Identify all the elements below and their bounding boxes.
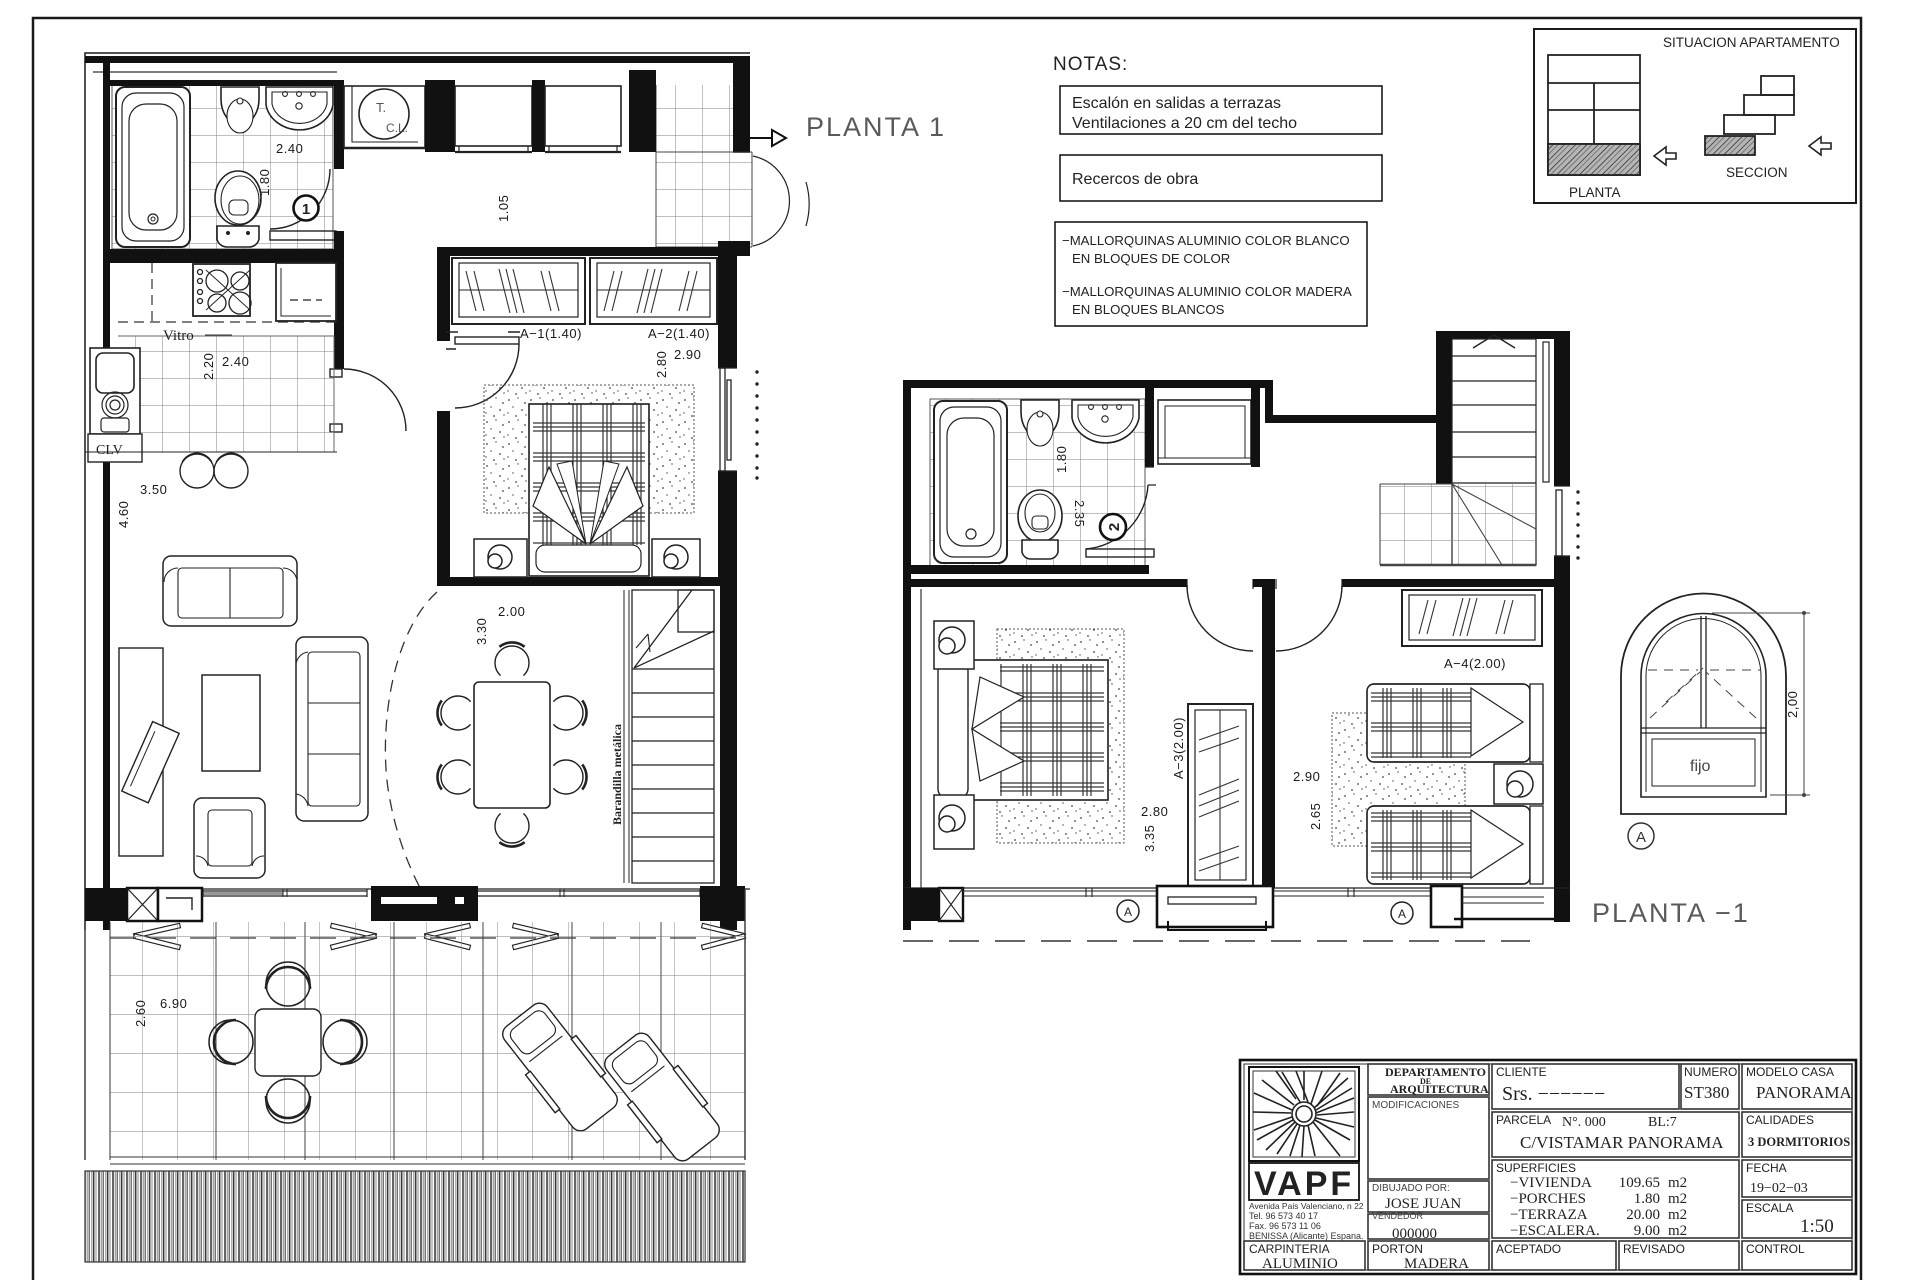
svg-text:ACEPTADO: ACEPTADO [1496,1242,1561,1256]
svg-text:3.30: 3.30 [474,618,489,645]
svg-text:2,00: 2,00 [1785,691,1800,718]
svg-text:BL:7: BL:7 [1648,1115,1677,1130]
svg-text:m2: m2 [1668,1191,1687,1207]
svg-text:N°. 000: N°. 000 [1562,1115,1606,1130]
svg-text:EN BLOQUES BLANCOS: EN BLOQUES BLANCOS [1072,302,1225,317]
svg-text:PLANTA: PLANTA [1569,185,1621,200]
svg-text:2.80: 2.80 [654,351,669,378]
svg-text:PANORAMA: PANORAMA [1756,1083,1852,1102]
svg-text:MADERA: MADERA [1404,1256,1469,1272]
svg-text:NOTAS:: NOTAS: [1053,54,1128,75]
svg-text:2.35: 2.35 [1072,500,1087,527]
svg-text:SITUACION APARTAMENTO: SITUACION APARTAMENTO [1663,35,1840,50]
svg-text:Tel. 96 573 40 17: Tel. 96 573 40 17 [1249,1211,1318,1221]
svg-text:PLANTA 1: PLANTA 1 [806,112,946,142]
svg-text:ARQUITECTURA: ARQUITECTURA [1390,1082,1489,1096]
svg-text:1.05: 1.05 [496,195,511,222]
svg-text:BENISSA (Alicante) Espana.: BENISSA (Alicante) Espana. [1249,1231,1364,1241]
svg-text:C.L.: C.L. [386,121,408,135]
svg-text:A: A [1398,907,1406,921]
svg-text:Escalón en salidas a terra: Escalón en salidas a terrazas [1072,95,1281,112]
svg-text:6.90: 6.90 [160,996,187,1011]
svg-text:CLIENTE: CLIENTE [1496,1065,1547,1079]
svg-text:ST380: ST380 [1684,1083,1729,1102]
svg-text:SUPERFICIES: SUPERFICIES [1496,1161,1576,1175]
svg-text:−MALLORQUINAS ALUMINIO COLOR: −MALLORQUINAS ALUMINIO COLOR MADERA [1062,284,1352,299]
svg-text:REVISADO: REVISADO [1623,1242,1685,1256]
svg-text:CALIDADES: CALIDADES [1746,1113,1814,1127]
svg-text:DEPARTAMENTO: DEPARTAMENTO [1385,1065,1486,1079]
svg-text:CONTROL: CONTROL [1746,1242,1805,1256]
svg-text:T.: T. [376,100,386,115]
svg-text:2.00: 2.00 [498,604,525,619]
svg-text:1.80: 1.80 [1054,446,1069,473]
svg-text:FECHA: FECHA [1746,1161,1787,1175]
svg-text:3.50: 3.50 [140,482,167,497]
svg-text:−TERRAZA: −TERRAZA [1510,1207,1588,1223]
svg-text:VAPF: VAPF [1254,1165,1354,1203]
svg-text:Ventilaciones a 20 cm del: Ventilaciones a 20 cm del techo [1072,115,1297,132]
svg-text:000000: 000000 [1392,1226,1437,1242]
svg-text:1:50: 1:50 [1800,1216,1834,1237]
svg-text:A−4(2.00): A−4(2.00) [1444,656,1506,671]
svg-text:−MALLORQUINAS ALUMINIO COLOR: −MALLORQUINAS ALUMINIO COLOR BLANCO [1062,233,1350,248]
svg-text:CARPINTERIA: CARPINTERIA [1249,1242,1330,1256]
svg-text:A−1(1.40): A−1(1.40) [520,326,582,341]
svg-text:Vitro: Vitro [163,328,194,344]
svg-text:NUMERO: NUMERO [1684,1065,1737,1079]
svg-text:3.35: 3.35 [1142,825,1157,852]
svg-text:−VIVIENDA: −VIVIENDA [1510,1175,1592,1191]
svg-text:CLV: CLV [96,443,123,458]
svg-text:−ESCALERA.: −ESCALERA. [1510,1223,1600,1239]
svg-text:1: 1 [302,201,310,218]
svg-text:Recercos de obra: Recercos de obra [1072,171,1198,188]
svg-text:2.90: 2.90 [674,347,701,362]
svg-text:109.65: 109.65 [1619,1175,1660,1191]
svg-text:20.00: 20.00 [1626,1207,1660,1223]
svg-text:Avenida Pais Valenciano, n: Avenida Pais Valenciano, n 22 [1249,1201,1364,1211]
svg-text:2.65: 2.65 [1308,803,1323,830]
svg-text:2.80: 2.80 [1141,804,1168,819]
svg-text:A: A [1636,829,1646,846]
svg-text:2.40: 2.40 [276,141,303,156]
svg-text:A: A [1124,905,1132,919]
svg-text:Barandilla metálica: Barandilla metálica [610,724,624,825]
svg-text:SECCION: SECCION [1726,165,1788,180]
svg-text:1.80: 1.80 [1634,1191,1660,1207]
svg-text:9.00: 9.00 [1634,1223,1660,1239]
svg-text:JOSE JUAN: JOSE JUAN [1385,1196,1461,1212]
svg-text:19−02−03: 19−02−03 [1750,1181,1808,1196]
svg-text:m2: m2 [1668,1207,1687,1223]
svg-text:DIBUJADO POR:: DIBUJADO POR: [1372,1183,1450,1194]
svg-text:fijo: fijo [1690,758,1711,775]
svg-text:MODIFICACIONES: MODIFICACIONES [1372,1100,1460,1111]
svg-text:ALUMINIO: ALUMINIO [1262,1256,1338,1272]
svg-text:A−3(2.00): A−3(2.00) [1171,717,1186,779]
svg-text:PARCELA: PARCELA [1496,1113,1551,1127]
svg-text:ESCALA: ESCALA [1746,1201,1793,1215]
svg-text:2: 2 [1106,523,1123,531]
svg-text:2.90: 2.90 [1293,769,1320,784]
svg-text:2.40: 2.40 [222,354,249,369]
svg-text:3 DORMITORIOS: 3 DORMITORIOS [1748,1135,1850,1149]
svg-text:Fax. 96 573 11 06: Fax. 96 573 11 06 [1249,1221,1321,1231]
svg-text:PORTON: PORTON [1372,1242,1423,1256]
svg-text:4.60: 4.60 [116,501,131,528]
svg-text:m2: m2 [1668,1223,1687,1239]
svg-text:EN BLOQUES DE COLOR: EN BLOQUES DE COLOR [1072,251,1230,266]
svg-text:A−2(1.40): A−2(1.40) [648,326,710,341]
svg-text:VENDEDOR: VENDEDOR [1372,1211,1424,1221]
svg-text:2.20: 2.20 [201,353,216,380]
svg-text:Srs. −−−−−−: Srs. −−−−−− [1502,1083,1605,1105]
svg-text:2.60: 2.60 [133,1000,148,1027]
svg-text:PLANTA −1: PLANTA −1 [1592,898,1750,928]
svg-text:m2: m2 [1668,1175,1687,1191]
svg-text:C/VISTAMAR PANORAMA: C/VISTAMAR PANORAMA [1520,1133,1724,1152]
svg-text:−PORCHES: −PORCHES [1510,1191,1586,1207]
svg-text:MODELO CASA: MODELO CASA [1746,1065,1834,1079]
